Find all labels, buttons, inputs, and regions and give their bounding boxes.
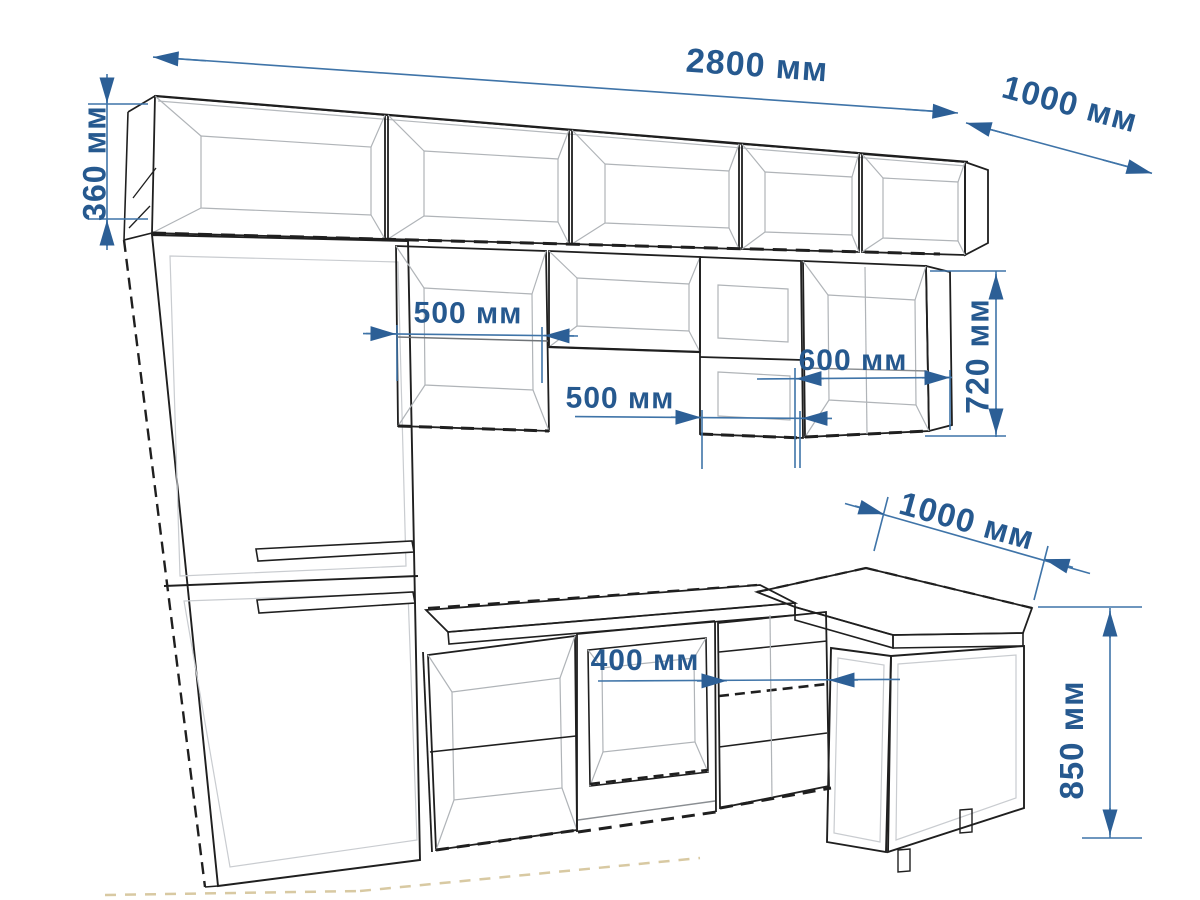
base-cabinet-open: [423, 636, 578, 852]
dim-label-upper-cabinet-height: 360 мм: [77, 105, 114, 221]
countertop: [426, 568, 1032, 648]
tall-fridge-column: [124, 235, 420, 887]
dim-label-wall-cabinet-width-3: 600 мм: [799, 344, 908, 378]
kitchen-dimension-drawing: 2800 мм 1000 мм 360 мм 500 мм 500 мм 600…: [0, 0, 1200, 900]
wall-cabinet-500-b: [700, 257, 803, 438]
dim-500-a-line: [363, 325, 578, 383]
dim-label-wall-cabinet-height: 720 мм: [960, 298, 997, 414]
dim-400-line: [598, 679, 900, 681]
dimension-lines: [88, 57, 1152, 838]
dim-label-base-cabinet-width: 400 мм: [591, 644, 700, 678]
dim-label-wall-cabinet-width-1: 500 мм: [413, 297, 522, 332]
dim-500-b-line: [575, 410, 832, 469]
wall-cabinet-500-a: [396, 246, 549, 431]
furniture-linework: [0, 0, 1200, 900]
top-wall-cabinet-row: [124, 96, 988, 255]
base-cabinet-shelves-400: [718, 612, 831, 808]
dim-label-wall-cabinet-width-2: 500 мм: [565, 382, 674, 417]
wall-cabinet-short: [549, 251, 700, 352]
dim-label-worktop-height: 850 мм: [1053, 680, 1091, 799]
corner-unit-legs: [898, 809, 972, 872]
floor-line: [105, 858, 700, 895]
